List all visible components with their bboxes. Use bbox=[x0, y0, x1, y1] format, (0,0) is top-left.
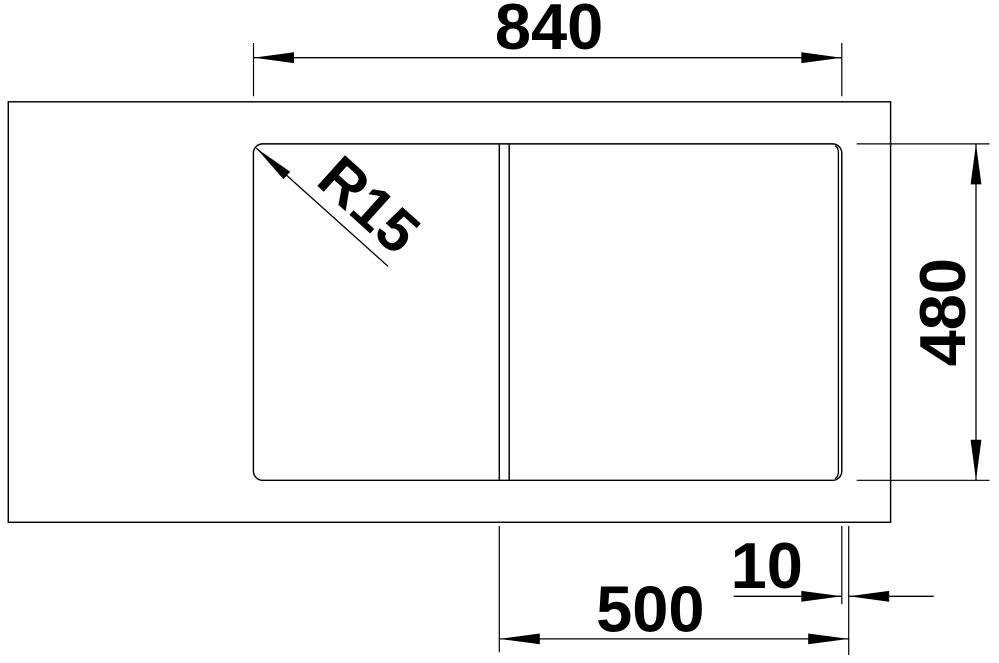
svg-text:480: 480 bbox=[906, 258, 979, 366]
svg-text:R15: R15 bbox=[306, 143, 433, 266]
svg-text:10: 10 bbox=[731, 529, 803, 602]
svg-text:500: 500 bbox=[596, 572, 704, 645]
svg-text:840: 840 bbox=[495, 0, 603, 63]
